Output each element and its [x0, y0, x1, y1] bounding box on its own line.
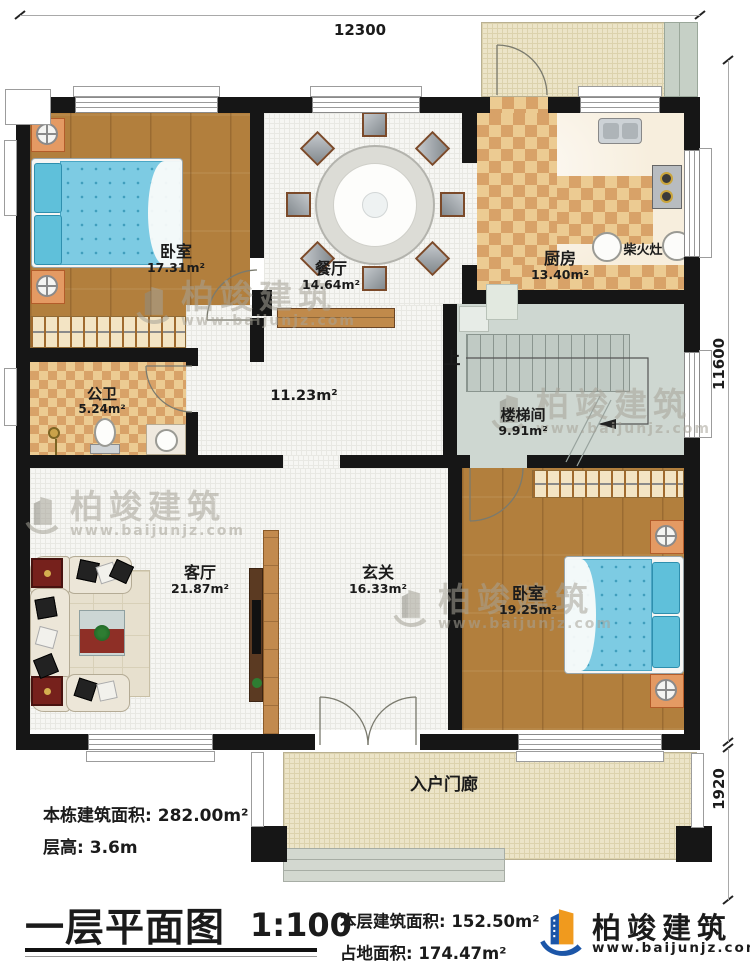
bedroom2-window	[518, 734, 662, 750]
bedroom1-pillow-1	[34, 163, 62, 213]
room-area: 5.24m²	[57, 403, 147, 416]
bedroom1-wardrobe	[30, 316, 186, 348]
room-label-bath: 公卫 5.24m²	[57, 386, 147, 416]
room-label-bedroom1: 卧室 17.31m²	[131, 243, 221, 275]
side-table-top	[31, 558, 63, 588]
wood-stove-label: 柴火灶	[610, 239, 676, 258]
bedroom2-pillow-2	[652, 616, 680, 668]
dimension-right-lower-value: 1920	[710, 754, 728, 824]
wall-stair-west	[443, 304, 457, 468]
bath-window-sill	[4, 368, 17, 426]
building-area-value: 282.00m²	[158, 806, 249, 826]
footprint-line: 占地面积: 174.47m²	[340, 940, 506, 964]
floor-height-value: 3.6m	[90, 838, 138, 858]
dimension-right-upper-value: 11600	[710, 329, 728, 399]
table-knob	[44, 570, 51, 577]
room-label-foyer: 玄关 16.33m²	[333, 564, 423, 596]
dining-chair	[362, 112, 387, 137]
lamp-icon	[655, 679, 677, 701]
plant-icon	[94, 625, 110, 641]
room-name: 客厅	[155, 564, 245, 582]
room-name: 玄关	[333, 564, 423, 582]
stair-up-label: 上	[441, 344, 463, 369]
burner-icon	[660, 172, 673, 185]
kitchen-stair-passage	[486, 284, 518, 320]
porch-column-right	[676, 826, 712, 862]
footprint-value: 174.47m²	[418, 944, 506, 963]
wall-bedroom1-east-upper	[250, 113, 264, 258]
sink-basin	[622, 123, 638, 139]
wall-kitchen-south-a	[462, 290, 486, 304]
room-label-dining: 餐厅 14.64m²	[286, 260, 376, 292]
title-underline-thin	[25, 956, 317, 957]
bedroom2-window-sill	[516, 751, 664, 762]
wall-bath-north	[16, 348, 198, 362]
wall-kitchen-south-b	[518, 290, 684, 304]
dimension-line-right-lower	[728, 748, 729, 900]
corner-box-topleft	[5, 89, 51, 125]
plan-title: 一层平面图	[25, 897, 225, 953]
tv-feature-wall	[263, 530, 279, 735]
room-area: 14.64m²	[286, 278, 376, 292]
lamp-icon	[655, 525, 677, 547]
room-area: 19.25m²	[483, 603, 573, 617]
room-name: 厨房	[515, 250, 605, 268]
burner-icon	[660, 190, 673, 203]
kitchen-stove	[652, 165, 682, 209]
bedroom2-wardrobe	[532, 470, 684, 498]
kitchen-east-window	[684, 150, 700, 257]
porch-edge-left	[251, 752, 264, 827]
wall-bath-east-upper	[186, 348, 198, 366]
dining-sideboard	[277, 308, 395, 328]
room-area: 21.87m²	[155, 582, 245, 596]
room-label-stair: 楼梯间 9.91m²	[478, 407, 568, 438]
bedroom2-nightstand-top	[650, 520, 684, 554]
shower-stem	[55, 439, 57, 455]
brand-logo-icon	[538, 903, 584, 961]
dining-window	[312, 97, 420, 113]
room-name: 公卫	[57, 386, 147, 403]
stair-appliance	[459, 306, 489, 332]
wall-bedroom2-north	[527, 455, 700, 468]
dining-chair	[440, 192, 465, 217]
plant-icon	[252, 678, 262, 688]
rear-door-threshold	[490, 97, 548, 113]
basin-icon	[155, 429, 178, 452]
dining-chair	[286, 192, 311, 217]
room-area: 17.31m²	[131, 261, 221, 275]
building-area-line: 本栋建筑面积: 282.00m²	[43, 801, 249, 826]
wall-kitchen-west-upper	[462, 97, 477, 163]
plan-scale: 1:100	[250, 906, 352, 944]
kitchen-window	[580, 97, 660, 113]
room-area: 13.40m²	[515, 268, 605, 282]
side-table-bottom	[31, 676, 63, 706]
title-underline-thick	[25, 948, 317, 952]
lamp-icon	[36, 275, 58, 297]
building-area-label: 本栋建筑面积:	[43, 806, 152, 826]
rear-porch-steps	[664, 22, 698, 97]
sink-basin	[603, 123, 619, 139]
room-area: 9.91m²	[478, 424, 568, 438]
wall-bedroom2-west	[448, 468, 462, 730]
floor-area-label: 本层建筑面积:	[340, 912, 446, 931]
kitchen-sink	[598, 118, 642, 144]
stair-window	[684, 352, 700, 438]
bedroom1-window-sill	[73, 86, 220, 97]
kitchen-east-window-sill	[699, 148, 712, 258]
room-label-bedroom2: 卧室 19.25m²	[483, 585, 573, 617]
footprint-label: 占地面积:	[340, 944, 413, 963]
entry-door-opening	[315, 734, 420, 750]
lamp-icon	[36, 123, 58, 145]
dimension-line-right-upper	[728, 60, 729, 742]
floor-height-label: 层高:	[43, 838, 84, 858]
table-knob	[44, 688, 51, 695]
floor-height-line: 层高: 3.6m	[43, 833, 138, 858]
dimension-line-top	[20, 15, 700, 16]
entry-porch-floor	[283, 752, 697, 860]
wall-left	[16, 97, 30, 750]
bedroom2-nightstand-bottom	[650, 674, 684, 708]
bedroom1-pillow-2	[34, 215, 62, 265]
wall-dining-stub	[252, 290, 272, 316]
room-name: 卧室	[131, 243, 221, 261]
tv-icon	[252, 600, 261, 654]
hall-foyer-opening	[283, 455, 340, 468]
porch-edge-right	[691, 753, 704, 828]
floor-plan-page: 12300 11600 1920	[0, 0, 750, 970]
kitchen-window-sill	[578, 86, 662, 97]
room-area: 16.33m²	[333, 582, 423, 596]
wall-hall-south-a	[30, 455, 283, 468]
dining-lazy-susan	[362, 192, 388, 218]
dimension-top-value: 12300	[310, 21, 410, 39]
room-name: 楼梯间	[478, 407, 568, 424]
bedroom2-pillow-1	[652, 562, 680, 614]
living-window	[88, 734, 213, 750]
room-label-living: 客厅 21.87m²	[155, 564, 245, 596]
room-label-kitchen: 厨房 13.40m²	[515, 250, 605, 282]
floor-area-value: 152.50m²	[451, 912, 539, 931]
entry-porch-steps	[283, 848, 505, 882]
room-name: 卧室	[483, 585, 573, 603]
floor-area-line: 本层建筑面积: 152.50m²	[340, 908, 539, 932]
bedroom1-window	[75, 97, 218, 113]
living-window-sill	[86, 751, 215, 762]
sofa-cushion	[34, 596, 57, 619]
coffee-table	[79, 610, 125, 656]
stair-treads	[466, 334, 630, 392]
bedroom1-side-window-sill	[4, 140, 17, 216]
shower-head-icon	[48, 427, 60, 439]
bath-vanity	[146, 424, 186, 455]
room-name: 餐厅	[286, 260, 376, 278]
porch-column-left	[251, 826, 287, 862]
room-label-porch: 入户门廊	[398, 770, 490, 795]
hall-area-label: 11.23m²	[266, 388, 342, 404]
toilet-icon	[94, 418, 116, 447]
bedroom1-nightstand-bottom	[31, 270, 65, 304]
dining-window-sill	[310, 86, 422, 97]
sofa-cushion	[96, 680, 117, 701]
brand-url: www.baijunjz.com	[592, 940, 750, 956]
wall-bedroom1-east-lower	[250, 318, 264, 362]
